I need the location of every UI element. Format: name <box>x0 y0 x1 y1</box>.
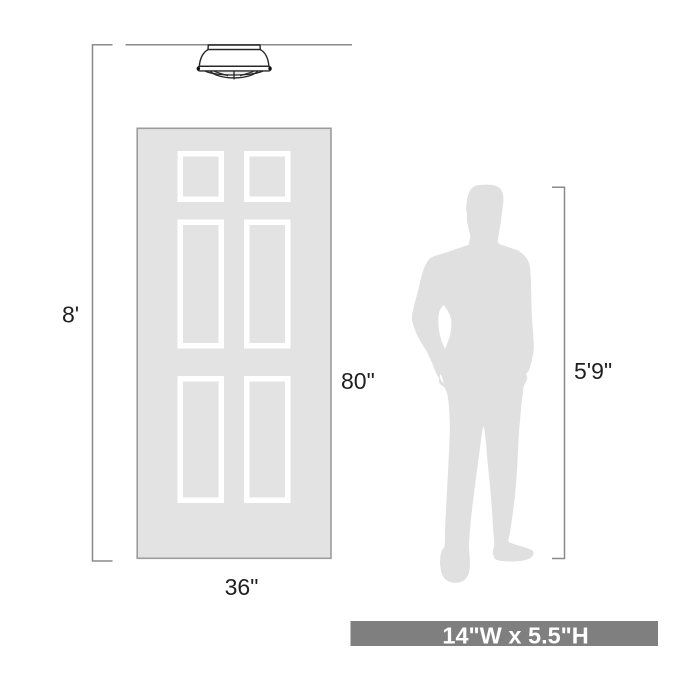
svg-text:14"W x 5.5"H: 14"W x 5.5"H <box>442 623 588 649</box>
svg-text:5'9": 5'9" <box>574 358 612 384</box>
svg-text:80": 80" <box>341 368 375 394</box>
svg-text:36": 36" <box>225 574 259 600</box>
svg-text:8': 8' <box>62 302 79 328</box>
